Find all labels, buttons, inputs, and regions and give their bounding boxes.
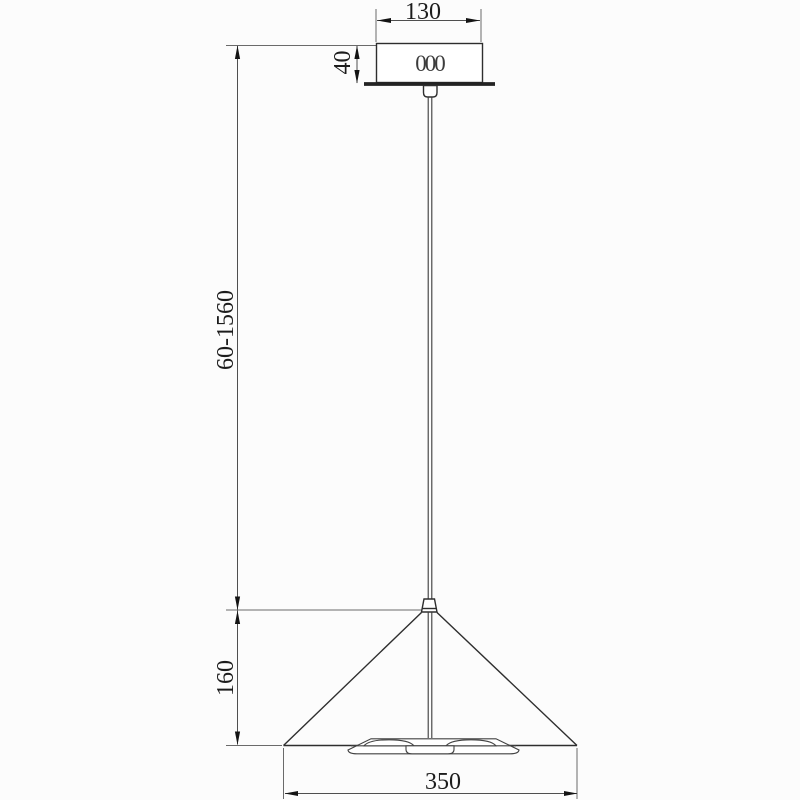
canopy-marking-text: 000 [415, 51, 445, 76]
cone-apex-connector [422, 599, 438, 612]
diffuser-center-module [406, 746, 454, 754]
cord-grip [424, 86, 438, 98]
dim-label-canopy-height: 40 [330, 51, 356, 75]
dim-label-canopy-width: 130 [405, 0, 441, 25]
lamp-dimension-drawing: 130 40 60-1560 160 350 000 [0, 0, 800, 800]
dim-label-suspension-length: 60-1560 [213, 290, 239, 370]
dim-label-shade-diameter: 350 [425, 769, 461, 795]
drawing-background [0, 0, 800, 800]
dim-label-shade-height: 160 [213, 660, 239, 696]
diffuser-plate [348, 739, 519, 754]
